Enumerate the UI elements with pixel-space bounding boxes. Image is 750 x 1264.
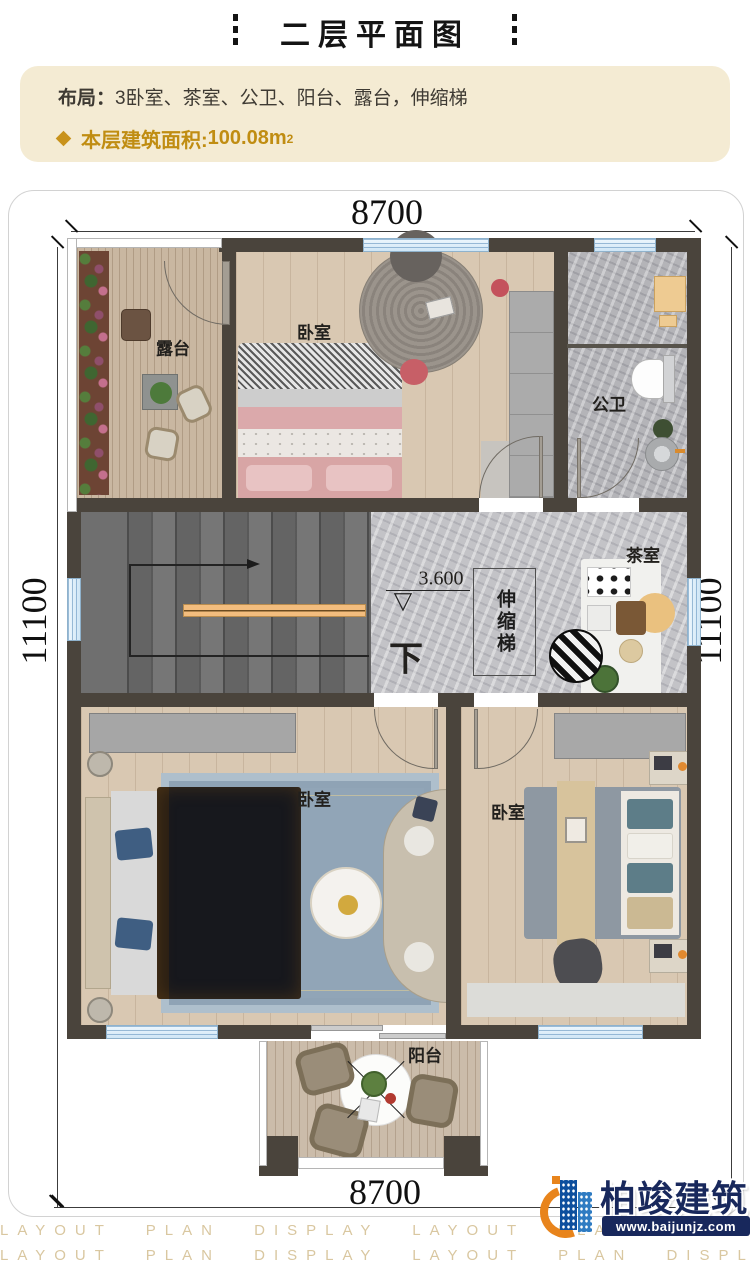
wall-bedroom-divider [446,707,461,1025]
stair-arrow-line [129,564,247,566]
room-label-bedroom-right: 卧室 [491,799,525,824]
room-label-bathroom: 公卫 [592,391,626,416]
balcony-sliding-door-leaf [311,1025,383,1031]
bed-left-pillow-zone [111,791,157,995]
balcony-plant [361,1071,387,1097]
terrace-stool [121,309,151,341]
area-exponent: 2 [287,132,294,146]
tv-cabinet [89,713,296,753]
wall-mid-lower-b [438,693,474,707]
level-value: 3.600 [419,568,464,591]
diamond-bullet-icon [56,131,72,147]
area-label: 本层建筑面积: [81,124,208,153]
window-top-2 [594,238,656,252]
pillow [627,833,673,859]
sofa-pillow [412,796,439,823]
bedside-lamp [87,997,113,1023]
brand-logo-icon [538,1176,602,1246]
balcony-railing-bottom [298,1157,444,1169]
dimension-line-right [731,247,732,1207]
bathroom-cabinet [654,276,686,312]
wall-mid-upper-c [639,498,701,512]
logo-tower-icon [560,1180,577,1230]
red-cushion [400,359,428,385]
round-side-table [310,867,382,939]
toilet-tank [663,355,675,403]
wall-mid-upper-b [543,498,577,512]
wall-mid-upper-a [67,498,479,512]
window-bottom-left [106,1025,218,1039]
table-decor [338,895,358,915]
room-label-terrace: 露台 [156,335,190,360]
logo-square-icon [552,1176,560,1184]
decor-dot [678,762,687,771]
laptop [654,756,672,770]
sofa-cushion [404,942,434,972]
website-url: www.baijunjz.com [616,1219,736,1234]
website-bar: www.baijunjz.com [602,1216,750,1236]
bedroom-right-rug [467,983,685,1017]
balcony-railing-right [480,1041,488,1166]
balcony-chair [404,1072,460,1130]
pillow [326,465,392,491]
bedroom-left-door-leaf [434,709,438,769]
stair-path-line [129,564,131,656]
stair-arrow-icon [247,559,260,569]
title-right-dashes-icon [512,14,517,50]
brand-name: 柏竣建筑 [600,1170,748,1222]
bathroom-plant [653,419,673,439]
bed-art-frame [565,817,587,843]
curved-sofa [383,789,447,1003]
stair-treads [127,512,371,693]
bed-top-band [238,389,402,407]
tea-chair [616,601,646,635]
bed-top [238,343,402,498]
terrace-table [142,374,178,410]
stair-handrail [183,604,366,617]
pillow [115,917,154,951]
logo-tower-icon [578,1192,592,1232]
terrace-flower-bed [79,251,109,495]
toilet [631,359,665,399]
bed-left-body [157,787,301,999]
tea-table [587,567,631,597]
dimension-bottom: 8700 [349,1171,421,1213]
striped-rug [549,629,603,683]
sofa-cushion [404,826,434,856]
window-right-tearoom [687,578,701,646]
terrace-plant [150,382,172,404]
tea-tray [619,639,643,663]
pillow [627,897,673,929]
balcony-railing-left [259,1041,267,1166]
bedroom-top-door-leaf [539,436,543,498]
book [357,1097,381,1122]
floor-plan-panel: 8700 8700 11100 11100 [8,190,744,1217]
info-box: 布局：3卧室、茶室、公卫、阳台、露台，伸缩梯 本层建筑面积:100.08m2 [20,66,730,162]
red-pouf [491,279,509,297]
title-left-dashes-icon [233,14,238,50]
bathroom-shelf [659,315,677,327]
window-left-stairs [67,578,81,641]
bed-top-pillows [238,457,402,498]
decor-dot [385,1093,396,1104]
area-line: 本层建筑面积:100.08m2 [58,124,730,153]
pillow [246,465,312,491]
wall-mid-lower-a [67,693,374,707]
tea-chair [587,605,611,631]
room-label-bedroom-top: 卧室 [297,319,331,344]
bed-left-headboard [85,797,111,989]
bed-right-runner [557,781,595,945]
area-value: 100.08m [208,127,287,150]
bathroom-sink [645,437,679,471]
level-marker-icon: ▽ [394,587,412,616]
dimension-left: 11100 [13,577,55,664]
laptop [654,944,672,958]
down-mark: 下 [389,632,423,681]
room-label-bedroom-left: 卧室 [297,786,331,811]
stair-path-line [129,655,369,657]
pillow [115,827,154,861]
bedside-lamp [87,751,113,777]
wall-bedroom-bathroom [554,238,568,512]
wall-mid-lower-c [538,693,701,707]
page-header: 二层平面图 [0,8,750,56]
decor-dot [678,950,687,959]
bed-top-blanket [238,407,402,429]
faucet [675,449,685,453]
layout-value: 3卧室、茶室、公卫、阳台、露台，伸缩梯 [115,88,468,109]
bed-right-mattress [621,791,679,935]
page-title: 二层平面图 [280,10,470,54]
terrace-chair [143,425,180,462]
layout-label: 布局： [58,88,115,109]
dimension-top: 8700 [351,191,423,233]
window-top-1 [363,238,489,252]
window-bottom-right [538,1025,643,1039]
dimension-line-left [57,247,58,1207]
wall-bathroom-partition [567,344,687,348]
bed-top-sheet [238,429,402,457]
pillow [627,863,673,893]
terrace-railing-top [67,238,222,248]
room-label-balcony: 阳台 [408,1042,442,1067]
terrace-railing-left [67,238,77,512]
balcony-sliding-door-leaf [379,1033,446,1039]
retractable-stair-label: 伸缩梯 [491,589,518,655]
room-label-tea-room: 茶室 [626,542,660,567]
layout-line: 布局：3卧室、茶室、公卫、阳台、露台，伸缩梯 [58,83,730,110]
retractable-stair-box: 伸缩梯 [473,568,536,676]
brand-logo: 柏竣建筑 www.baijunjz.com [538,1172,750,1250]
pillow [627,799,673,829]
